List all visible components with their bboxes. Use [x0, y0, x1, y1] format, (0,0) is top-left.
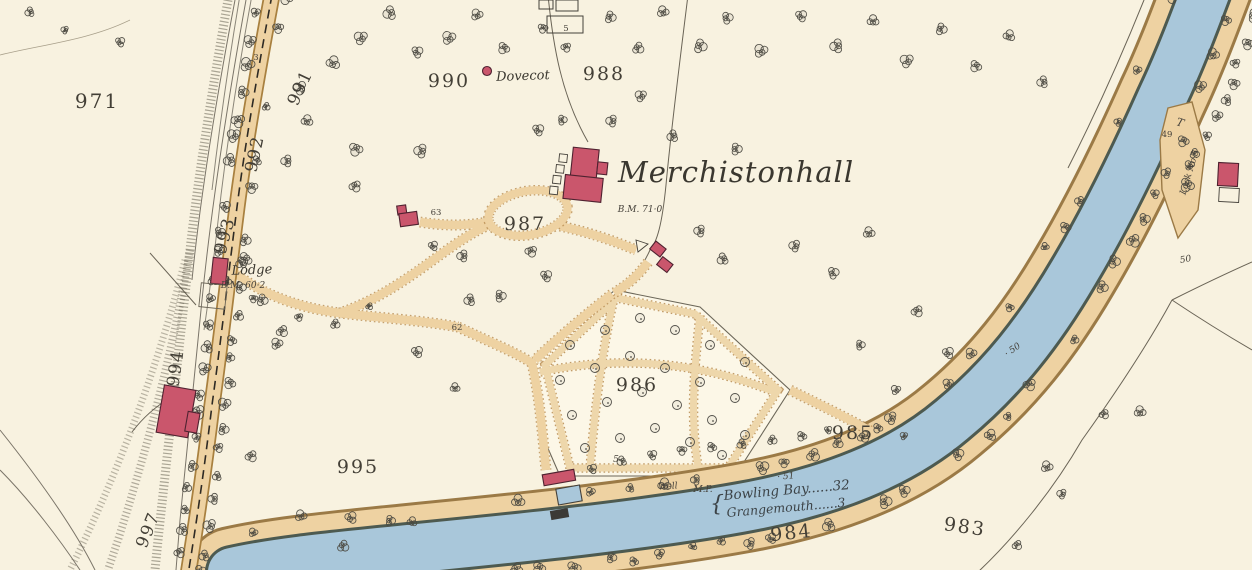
orchard-tree-icon — [661, 364, 670, 373]
orchard-tree-icon — [616, 434, 625, 443]
label-well: Well — [658, 481, 678, 492]
label-spot-51: · 51 — [777, 471, 795, 482]
label-parcel-984: 984 — [769, 520, 813, 546]
label-parcel-985: 985 — [832, 422, 874, 444]
label-canal-brace: { — [710, 492, 724, 517]
orchard-tree-icon — [731, 394, 740, 403]
orchard-tree-icon — [636, 314, 645, 323]
orchard-tree-icon — [708, 416, 717, 425]
orchard-tree-icon — [673, 401, 682, 410]
label-pen-5: 5 — [563, 24, 568, 34]
orchard-tree-icon — [671, 326, 680, 335]
label-lodge-benchmark: B.M. 60·2 — [220, 281, 266, 291]
label-parcel-990: 990 — [428, 70, 470, 92]
label-spot-50-bank: 50 — [1179, 254, 1192, 266]
orchard-tree-icon — [626, 352, 635, 361]
orchard-tree-icon — [696, 378, 705, 387]
label-plot-63: 63 — [431, 208, 442, 218]
canal-basin — [556, 485, 582, 505]
lock-keeper-building — [1217, 162, 1238, 186]
label-spot-5: 5 — [613, 455, 619, 465]
label-parcel-987: 987 — [504, 213, 546, 235]
dovecot-building — [483, 67, 492, 76]
label-plot-62: 62 — [452, 323, 463, 333]
orchard-tree-icon — [591, 364, 600, 373]
label-parcel-986: 986 — [616, 374, 658, 396]
label-parcel-995: 995 — [337, 456, 379, 478]
orchard-tree-icon — [741, 358, 750, 367]
map-canvas[interactable]: 971 990 Dovecot 988 991 992 993 994 997 … — [0, 0, 1252, 570]
map-svg: 971 990 Dovecot 988 991 992 993 994 997 … — [0, 0, 1252, 570]
orchard-tree-icon — [568, 411, 577, 420]
label-dovecot: Dovecot — [495, 68, 551, 85]
orchard-tree-icon — [566, 341, 575, 350]
orchard-tree-icon — [706, 341, 715, 350]
orchard-tree-icon — [603, 398, 612, 407]
label-parcel-971: 971 — [75, 89, 119, 113]
lock-outbuilding — [1219, 187, 1240, 202]
label-estate-name: Merchistonhall — [617, 155, 854, 189]
orchard-tree-icon — [581, 444, 590, 453]
orchard-tree-icon — [651, 424, 660, 433]
label-mile-post: M.P. — [692, 485, 712, 495]
label-spot-49: 49 — [1162, 130, 1173, 140]
orchard-tree-icon — [741, 431, 750, 440]
label-lodge: Lodge — [230, 262, 273, 278]
label-parcel-988: 988 — [583, 63, 625, 85]
orchard-tree-icon — [556, 376, 565, 385]
orchard-tree-icon — [718, 451, 727, 460]
label-spot-3: 3 — [253, 53, 258, 63]
orchard-tree-icon — [686, 438, 695, 447]
label-house-benchmark: B.M. 71·0 — [617, 205, 663, 215]
orchard-tree-icon — [601, 326, 610, 335]
